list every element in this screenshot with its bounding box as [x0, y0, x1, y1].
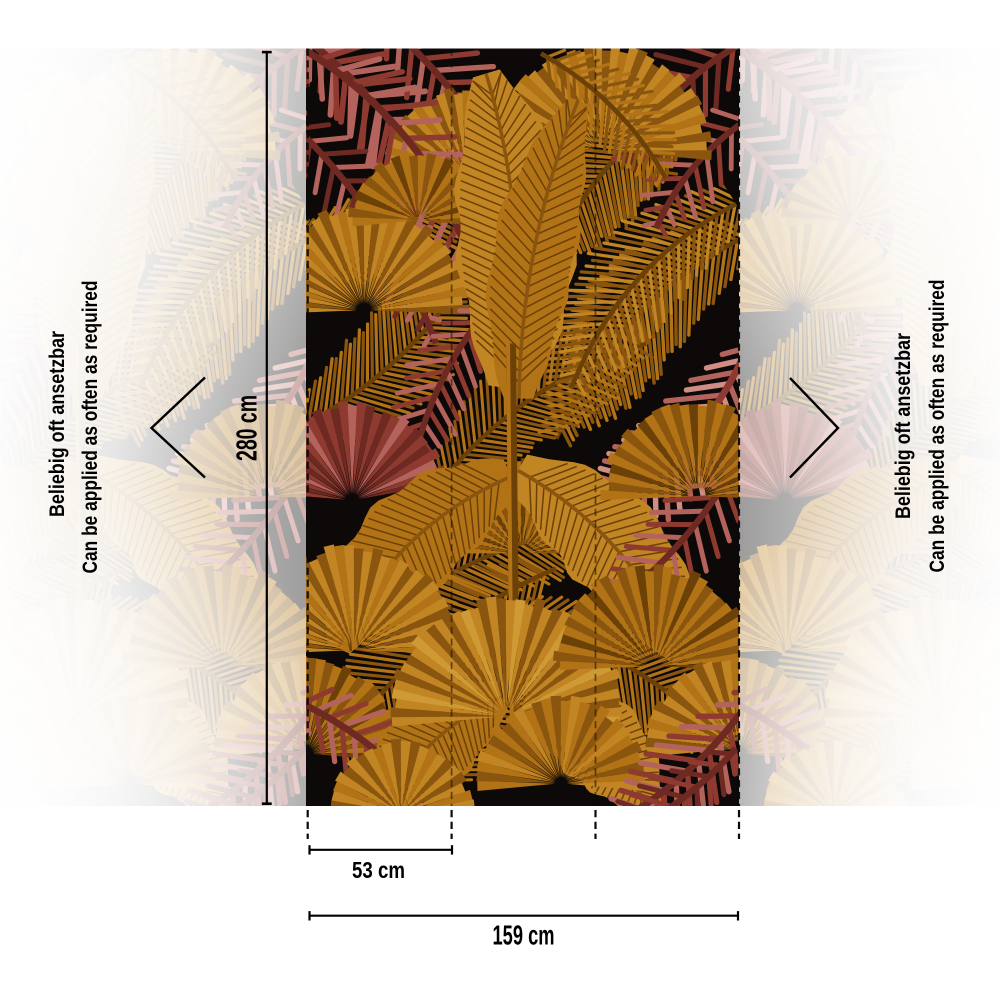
svg-text:Beliebig oft ansetzbar: Beliebig oft ansetzbar: [891, 332, 915, 519]
svg-text:53 cm: 53 cm: [352, 857, 405, 883]
svg-text:159 cm: 159 cm: [493, 920, 555, 951]
svg-text:Can be applied as often as req: Can be applied as often as required: [925, 280, 949, 573]
svg-text:280 cm: 280 cm: [232, 395, 264, 461]
svg-text:Beliebig oft ansetzbar: Beliebig oft ansetzbar: [45, 330, 69, 517]
svg-text:Can be applied as often as req: Can be applied as often as required: [78, 281, 102, 574]
